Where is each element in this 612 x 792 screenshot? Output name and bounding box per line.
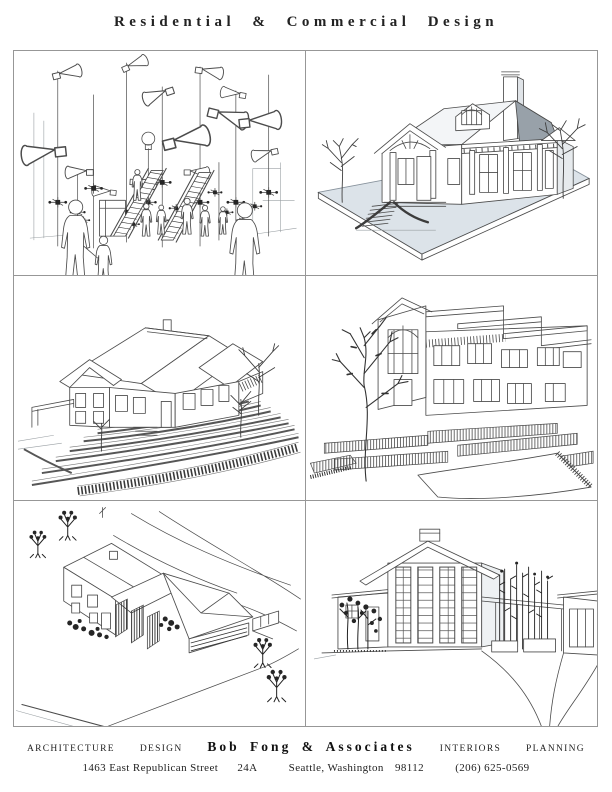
panel-terraced-residence <box>14 276 306 501</box>
panel-modern-house <box>306 501 598 726</box>
address-zip: 98112 <box>395 762 424 774</box>
service-interiors: INTERIORS <box>440 744 501 754</box>
address-street: 1463 East Republican Street <box>82 762 218 774</box>
panel-aerial-site <box>14 501 306 726</box>
panel-hillside-house <box>306 276 598 501</box>
footer-address-row: 1463 East Republican Street 24A Seattle,… <box>0 762 612 774</box>
portfolio-page: Residential & Commercial Design <box>0 0 612 792</box>
hillside-house-perspective-drawing <box>306 276 598 500</box>
firm-name: Bob Fong & Associates <box>207 739 414 755</box>
panel-kinetic-sculpture-plaza <box>14 51 306 276</box>
footer-services-row: ARCHITECTURE DESIGN Bob Fong & Associate… <box>27 739 585 755</box>
service-design: DESIGN <box>140 744 183 754</box>
terraced-residence-isometric-drawing <box>14 276 305 500</box>
modern-house-entry-perspective-drawing <box>306 501 598 726</box>
address-unit: 24A <box>237 762 257 774</box>
page-title: Residential & Commercial Design <box>0 14 612 31</box>
aerial-site-axonometric-drawing <box>14 501 305 726</box>
portfolio-grid <box>13 50 598 727</box>
kinetic-sculpture-plaza-drawing <box>14 51 305 275</box>
service-planning: PLANNING <box>526 744 585 754</box>
service-architecture: ARCHITECTURE <box>27 744 115 754</box>
craftsman-house-rendering <box>306 51 598 275</box>
address-phone: (206) 625-0569 <box>455 762 529 774</box>
address-city: Seattle, Washington <box>289 762 384 774</box>
panel-craftsman-house <box>306 51 598 276</box>
